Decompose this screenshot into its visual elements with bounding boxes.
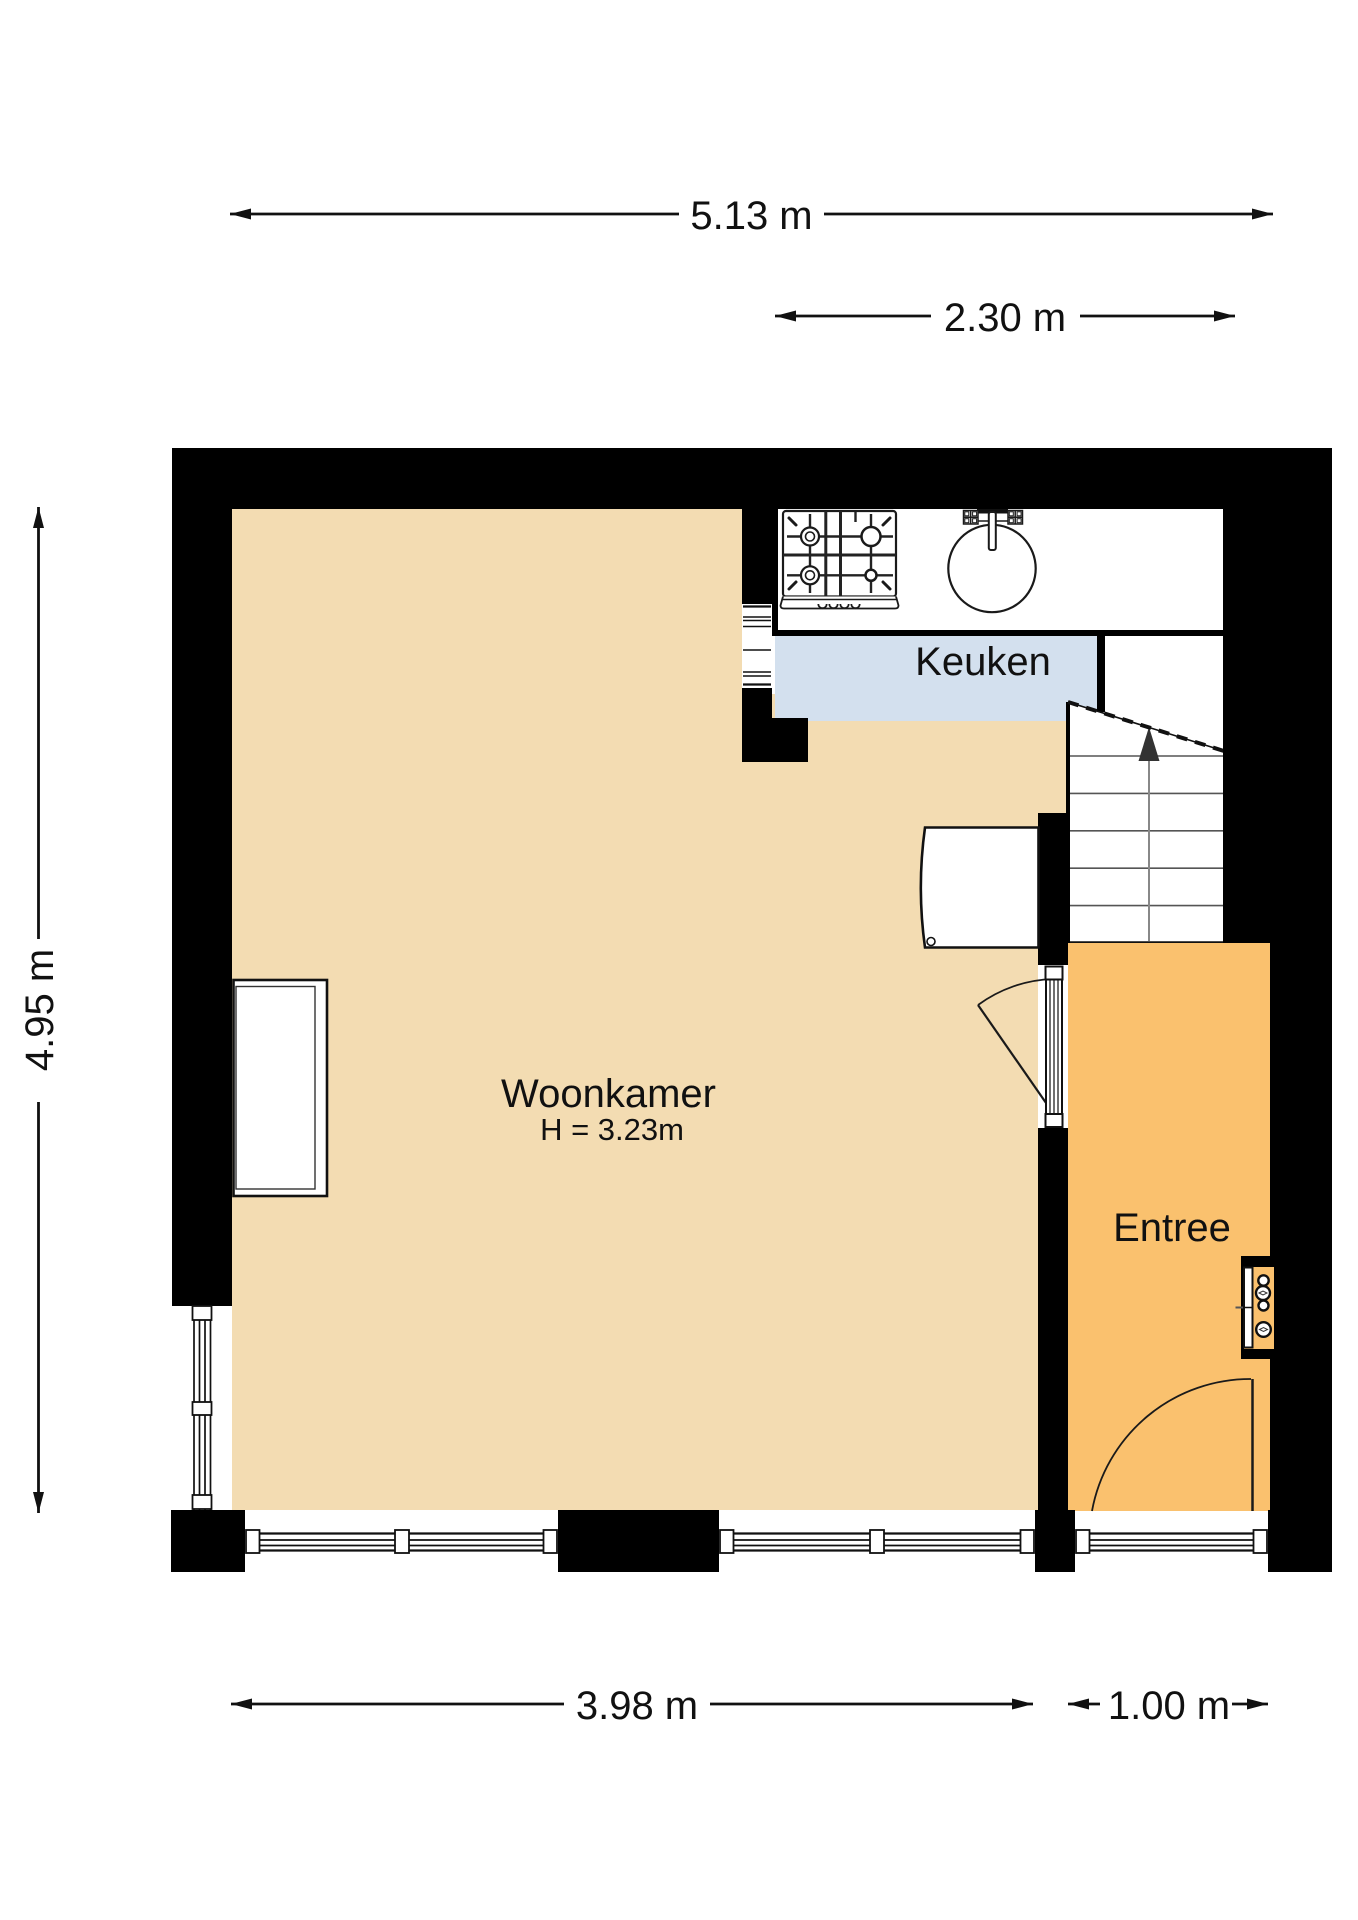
svg-text:2.30 m: 2.30 m [944,296,1066,340]
svg-text:5.13 m: 5.13 m [690,194,812,238]
svg-text:Keuken: Keuken [915,640,1051,684]
svg-text:1.00 m: 1.00 m [1108,1684,1230,1728]
svg-text:3.98 m: 3.98 m [576,1684,698,1728]
svg-text:4.95 m: 4.95 m [18,949,62,1071]
svg-text:Entree: Entree [1113,1206,1231,1250]
svg-text:Woonkamer: Woonkamer [501,1072,716,1116]
svg-text:H = 3.23m: H = 3.23m [540,1112,684,1147]
